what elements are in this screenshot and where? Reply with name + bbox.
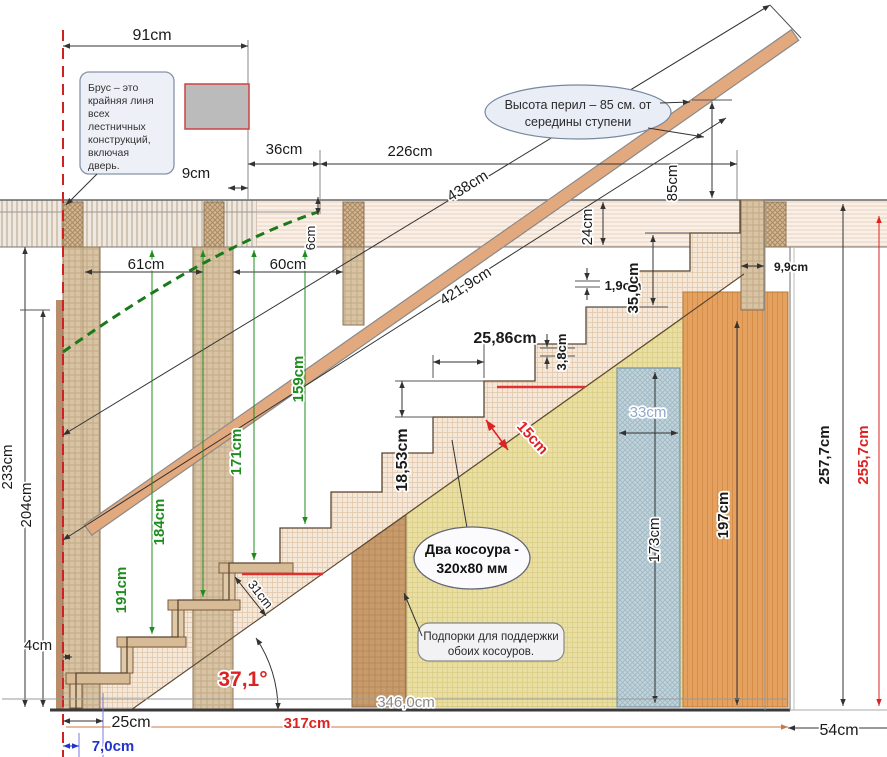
brus-text-line6: включая [88,147,129,159]
brus-text-line7: дверь. [88,160,120,172]
dim-3-8cm: 3,8cm [554,334,569,371]
beam-right-icon [343,202,364,247]
dim-36cm: 36cm [266,141,303,158]
dim-7-0cm: 7,0cm [92,738,135,755]
dim-33cm: 33cm [630,404,667,421]
post-left [63,247,100,710]
dim-6cm: 6cm [303,226,318,251]
dim-255-7cm: 255,7cm [855,425,872,484]
stringers-text-line2: 320х80 мм [436,560,507,576]
brus-text-line2: крайняя линя [88,95,154,107]
dim-91cm: 91cm [132,27,171,44]
dim-173cm: 173cm [646,517,663,562]
dim-25-86cm: 25,86cm [473,330,536,347]
props-text-line1: Подпорки для поддержки [423,631,558,643]
dim-204cm: 204cm [18,482,35,527]
dim-4cm: 4cm [24,637,52,654]
dim-184cm: 184cm [151,499,168,546]
dim-171cm: 171cm [228,429,245,476]
beam-mid-icon [204,202,224,247]
railing-text-line2: середины ступени [525,115,631,129]
dim-35-0cm: 35,0cm [625,263,642,314]
dim-317cm: 317cm [284,715,331,732]
brus-text-line4: лестничных [88,121,147,133]
orange-column [683,292,788,707]
dim-9-9cm: 9,9cm [774,260,808,274]
brus-text-line3: всех [88,108,110,120]
dim-191cm: 191cm [113,567,130,614]
dim-61cm: 61cm [128,256,165,273]
staircase-drawing-page: Брус – это крайняя линя всех лестничных … [0,0,887,757]
dim-24cm: 24cm [579,209,596,246]
dim-54cm: 54cm [819,722,858,739]
brus-text-line5: конструкций, [88,134,151,146]
dim-159cm: 159cm [290,356,307,403]
beam-legend-swatch [185,84,249,129]
props-text-line2: обоих косоуров. [448,646,534,658]
brus-text-line1: Брус – это [88,82,138,94]
dim-9cm: 9cm [182,165,210,182]
dim-257-7cm: 257,7cm [816,425,833,484]
dim-85cm: 85cm [664,165,681,202]
stringers-text-line1: Два косоура - [425,541,519,557]
railing-text-line1: Высота перил – 85 см. от [505,98,652,112]
dim-60cm: 60cm [270,256,307,273]
dim-18-53cm: 18,53cm [394,428,411,491]
beam-left-icon [63,202,83,247]
post-middle [193,247,233,710]
dim-angle-37-1: 37,1° [218,668,267,691]
dim-25cm: 25cm [111,714,150,731]
beam-far-right-icon [764,202,786,247]
staircase-drawing: Брус – это крайняя линя всех лестничных … [0,0,887,757]
dim-346-0cm: 346,0cm [377,694,435,711]
dim-197cm: 197cm [715,492,732,539]
dim-233cm: 233cm [0,444,16,489]
dim-226cm: 226cm [387,143,432,160]
post-top-right [741,200,764,310]
